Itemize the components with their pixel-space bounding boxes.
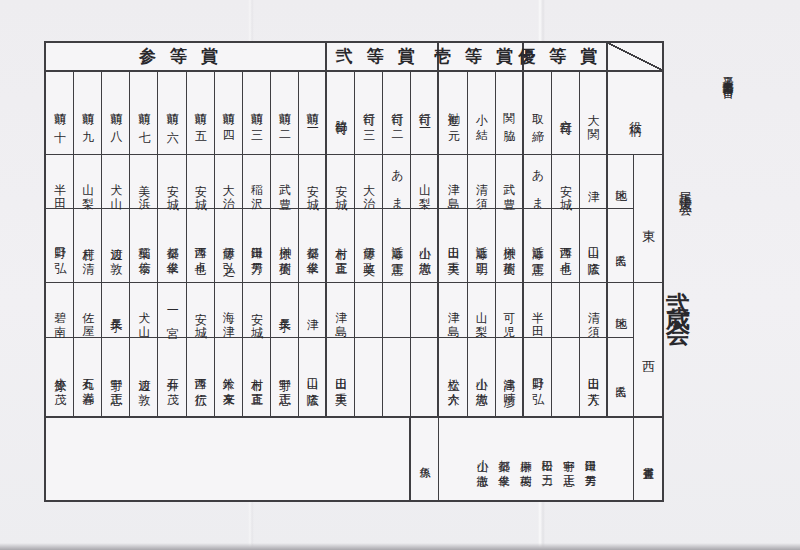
west-district-cell: 半 田 [524,283,552,338]
west-district-cell [552,283,580,338]
east-district-cell: 武 豊 [496,155,524,209]
east-name-cell: 庄村 清 [74,209,102,283]
rank-cell: 大 関 [580,72,608,155]
results-table: 参等賞前頭 十半 田野口 弘碧 南小笠原 茂前頭 九山 梨庄村 清佐 屋石丸 満… [44,41,664,502]
east-district-cell: 山 梨 [411,155,439,209]
west-name-cell [552,338,580,418]
prize-section-title: 壱等賞 [439,43,523,72]
judge-name: 榊原 英樹 [519,451,532,468]
scan-bottom-edge [0,543,800,550]
west-district-cell [411,283,439,338]
west-name-cell: 渡辺 敦 [130,338,158,418]
rank-cell: 前頭 二 [271,72,299,155]
west-district-cell: 津 [299,283,327,338]
rank-cell: 関 脇 [496,72,524,155]
east-district-cell: あ ま [524,155,552,209]
judges-label: 審査員 [634,418,662,500]
west-name-cell: 立松 大介 [439,338,467,418]
rank-cell: 前頭 七 [130,72,158,155]
west-district-cell: 安 城 [187,283,215,338]
east-name-cell: 近藤 憲正 [524,209,552,283]
west-name-cell: 市村 正直 [243,338,271,418]
west-district-cell: 津 島 [439,283,467,338]
prize-section-title: 弐等賞 [327,43,439,72]
west-district-cell: 安 城 [243,283,271,338]
rank-cell: 前頭 八 [102,72,130,155]
rank-cell: 行司 二 [383,72,411,155]
west-name-cell [383,338,411,418]
east-name-cell: 榊原 英樹 [271,209,299,283]
diagonal-cell [608,43,662,72]
west-name-cell: 宇野 正志 [271,338,299,418]
east-name-cell: 山口 広隆 [580,209,608,283]
west-district-cell [355,283,383,338]
west-district-cell: 犬 山 [130,283,158,338]
rank-cell: 行司 三 [355,72,383,155]
west-district-cell [383,283,411,338]
east-district-cell: 武 豊 [271,155,299,209]
east-name-cell: 伊藤 弘之 [215,209,243,283]
west-name-cell: 小笠原 茂 [46,338,74,418]
judge-name: 都築 俊幸 [497,451,510,468]
west-district-cell: 山 梨 [468,283,496,338]
rank-cell: 前頭 四 [215,72,243,155]
east-district-cell: 安 城 [552,155,580,209]
role-label: 役柄 [608,72,662,155]
east-district-cell: 稲 沢 [243,155,271,209]
east-name-cell: 山田 重夫 [439,209,467,283]
east-district-cell: 半 田 [46,155,74,209]
rank-cell: 行司 一 [411,72,439,155]
east-district-cell: 大 治 [355,155,383,209]
east-name-cell: 都築 俊幸 [299,209,327,283]
east-name-cell: 榊原 英樹 [496,209,524,283]
west-district-cell: 津 島 [327,283,355,338]
rank-cell: 前頭 六 [158,72,186,155]
fish-staff-label: 魚係 [411,418,439,500]
west-district-cell: 可 児 [496,283,524,338]
west-district-cell: 長久手 [102,283,130,338]
west-name-cell: 小山 徹志 [468,338,496,418]
rank-cell: 前頭 十 [46,72,74,155]
west-name-cell: 山口 広隆 [299,338,327,418]
east-district-cell: 清 須 [468,155,496,209]
east-name-cell: 鎌田 芳男 [243,209,271,283]
judge-name: 宇野 正志 [562,451,575,468]
west-name-cell: 鈴木 友来 [215,338,243,418]
east-name-cell: 渡辺 敦 [102,209,130,283]
name-label-west: 氏名 [608,338,634,418]
west-name-cell: 山田 重夫 [327,338,355,418]
east-label: 東 [634,155,662,283]
east-name-cell: 近藤 正明 [468,209,496,283]
east-district-cell: 安 城 [158,155,186,209]
east-name-cell: 西澤 卓也 [552,209,580,283]
east-name-cell: 稲葉 信泰 [130,209,158,283]
east-name-cell: 伊藤 政美 [355,209,383,283]
judge-name: 小山 徹志 [476,451,489,468]
rank-cell: 前頭 一 [299,72,327,155]
west-district-cell: 海 津 [215,283,243,338]
west-name-cell: 宇野 正志 [102,338,130,418]
east-district-cell: 安 城 [299,155,327,209]
west-district-cell: 長久手 [271,283,299,338]
rank-cell: 小 結 [468,72,496,155]
rank-cell: 脇行司 [327,72,355,155]
rank-cell: 前頭 五 [187,72,215,155]
west-name-cell: 山田 芳人 [580,338,608,418]
east-district-cell: 津 [580,155,608,209]
empty-cell [46,418,411,500]
east-name-cell: 野口 弘 [46,209,74,283]
judge-name: 鎌田 芳男 [584,451,597,468]
east-district-cell: 美 浜 [130,155,158,209]
east-district-cell: 安 城 [327,155,355,209]
east-district-cell: 山 梨 [74,155,102,209]
west-district-cell: 清 須 [580,283,608,338]
west-district-cell: 佐 屋 [74,283,102,338]
west-name-cell: 高津 晴彦 [496,338,524,418]
west-name-cell: 西澤 広行 [187,338,215,418]
rank-cell: 前頭 九 [74,72,102,155]
prize-section-title: 参等賞 [46,43,327,72]
east-name-cell: 市村 正直 [327,209,355,283]
prize-section-title: 優等賞 [524,43,608,72]
west-name-cell: 野口 弘 [524,338,552,418]
east-name-cell: 近藤 憲正 [383,209,411,283]
rank-cell: 前頭 三 [243,72,271,155]
rank-cell: 取 締 [524,72,552,155]
east-name-cell: 小山 徹志 [411,209,439,283]
judges-cell: 小山 徹志都築 俊幸榊原 英樹松田 力三宇野 正志鎌田 芳男 [439,418,634,500]
west-name-cell: 石丸 満春 [74,338,102,418]
east-district-cell: 津 島 [439,155,467,209]
east-district-cell: 安 城 [187,155,215,209]
east-name-cell: 西澤 卓也 [187,209,215,283]
rank-cell: 立行司 [552,72,580,155]
district-label-west: 地区 [608,283,634,338]
rank-cell: 勧進 元 [439,72,467,155]
judge-name: 松田 力三 [541,451,554,468]
east-district-cell: あ ま [383,155,411,209]
name-label-east: 氏名 [608,209,634,283]
east-district-cell: 大 治 [215,155,243,209]
east-district-cell: 犬 山 [102,155,130,209]
club-name: 尾張優魚会 [679,181,692,196]
event-date: 平成二十七年五月二十四日（日） [722,68,733,83]
east-name-cell: 都築 俊幸 [158,209,186,283]
west-name-cell: 石井 茂 [158,338,186,418]
west-name-cell [411,338,439,418]
west-label: 西 [634,283,662,418]
district-label-east: 地区 [608,155,634,209]
west-district-cell: 一 宮 [158,283,186,338]
west-name-cell [355,338,383,418]
event-title: 弐歳会 [666,272,690,317]
west-district-cell: 碧 南 [46,283,74,338]
